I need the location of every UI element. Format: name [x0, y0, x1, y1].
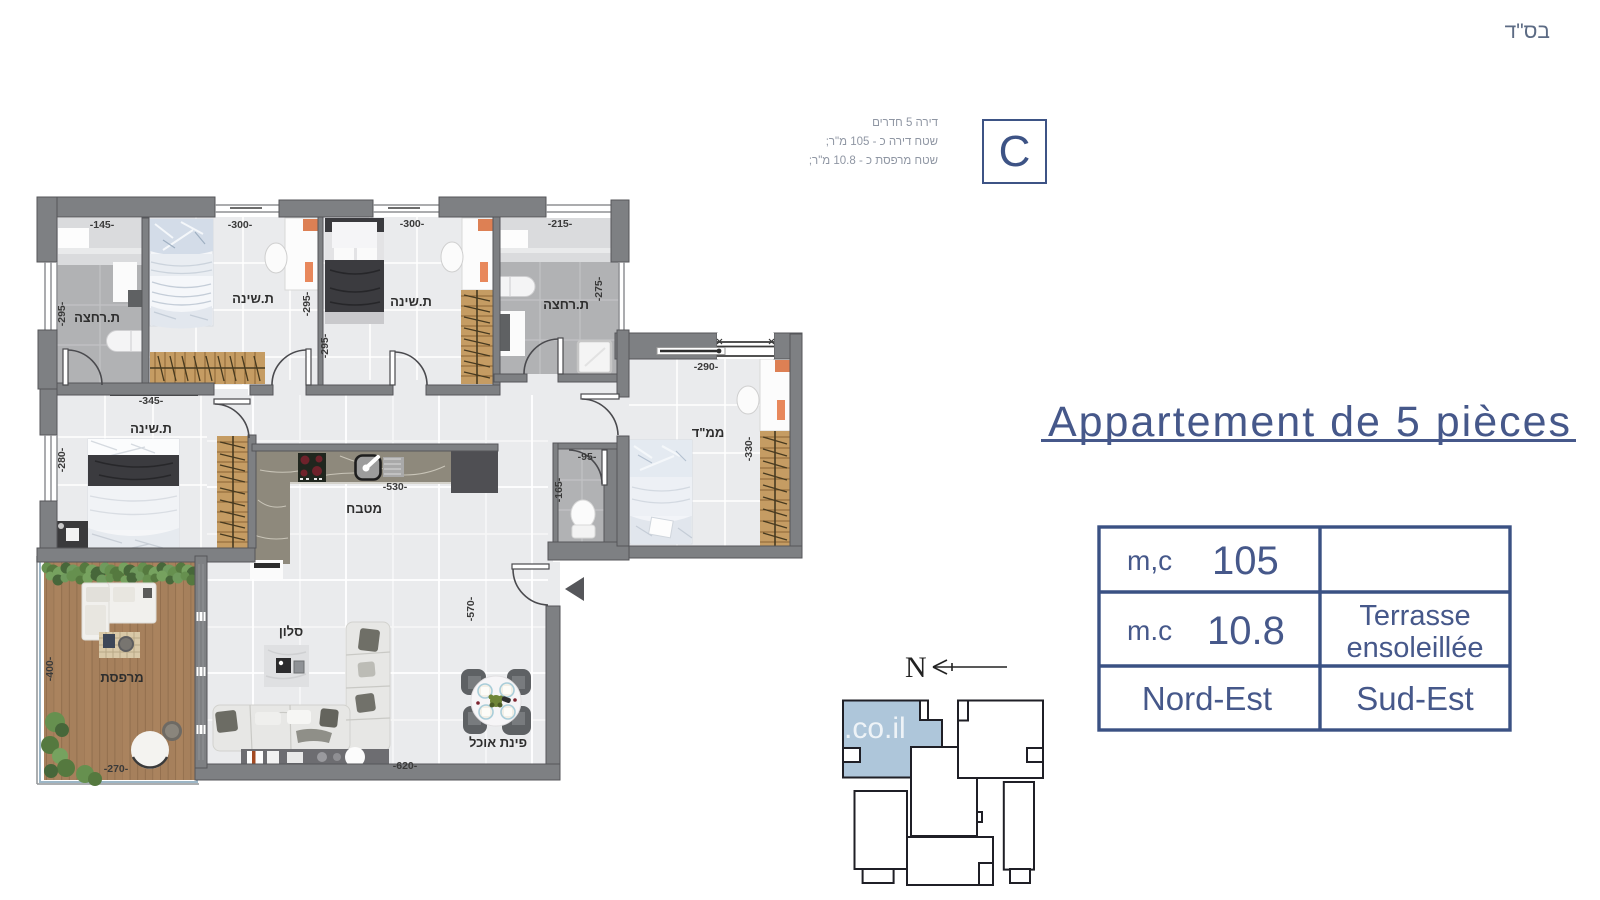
svg-text:105: 105 — [1212, 539, 1279, 583]
svg-text:N: N — [905, 651, 927, 684]
svg-text:-165-: -165- — [553, 477, 565, 502]
svg-text:-280-: -280- — [56, 447, 68, 472]
svg-text:.co.il: .co.il — [844, 712, 906, 745]
svg-text:10.8: 10.8 — [1207, 609, 1285, 653]
svg-text:ת.שינה: ת.שינה — [390, 294, 432, 309]
svg-text:-530-: -530- — [383, 481, 408, 493]
svg-text:-345-: -345- — [139, 395, 164, 407]
svg-text:מטבח: מטבח — [346, 501, 382, 516]
svg-text:-145-: -145- — [90, 219, 115, 231]
svg-text:-620-: -620- — [393, 760, 418, 772]
svg-text:Terrasse: Terrasse — [1359, 600, 1470, 632]
svg-text:ת.שינה: ת.שינה — [130, 421, 172, 436]
svg-text:-290-: -290- — [694, 361, 719, 373]
svg-text:-275-: -275- — [593, 276, 605, 301]
svg-text:m.c: m.c — [1127, 615, 1172, 646]
svg-text:Sud-Est: Sud-Est — [1356, 680, 1473, 717]
svg-text:-330-: -330- — [743, 436, 755, 461]
svg-text:מרפסת: מרפסת — [100, 670, 143, 685]
svg-text:-95-: -95- — [578, 451, 597, 463]
svg-text:-300-: -300- — [228, 219, 253, 231]
svg-text:-295-: -295- — [319, 333, 331, 358]
svg-text:ת.רחצה: ת.רחצה — [74, 310, 120, 325]
svg-text:-295-: -295- — [56, 301, 68, 326]
svg-text:-300-: -300- — [400, 218, 425, 230]
svg-text:-295-: -295- — [301, 291, 313, 316]
svg-text:-270-: -270- — [104, 763, 129, 775]
svg-text:m,c: m,c — [1127, 545, 1172, 576]
svg-text:ensoleillée: ensoleillée — [1346, 632, 1483, 664]
svg-text:-215-: -215- — [548, 218, 573, 230]
svg-text:-400-: -400- — [44, 656, 56, 681]
svg-text:Nord-Est: Nord-Est — [1142, 680, 1272, 717]
svg-text:ת.שינה: ת.שינה — [232, 291, 274, 306]
svg-text:-570-: -570- — [465, 596, 477, 621]
svg-text:ת.רחצה: ת.רחצה — [543, 297, 589, 312]
svg-text:פינת אוכל: פינת אוכל — [469, 735, 527, 750]
svg-text:סלון: סלון — [279, 624, 303, 639]
svg-text:ממ"ד: ממ"ד — [692, 425, 725, 440]
